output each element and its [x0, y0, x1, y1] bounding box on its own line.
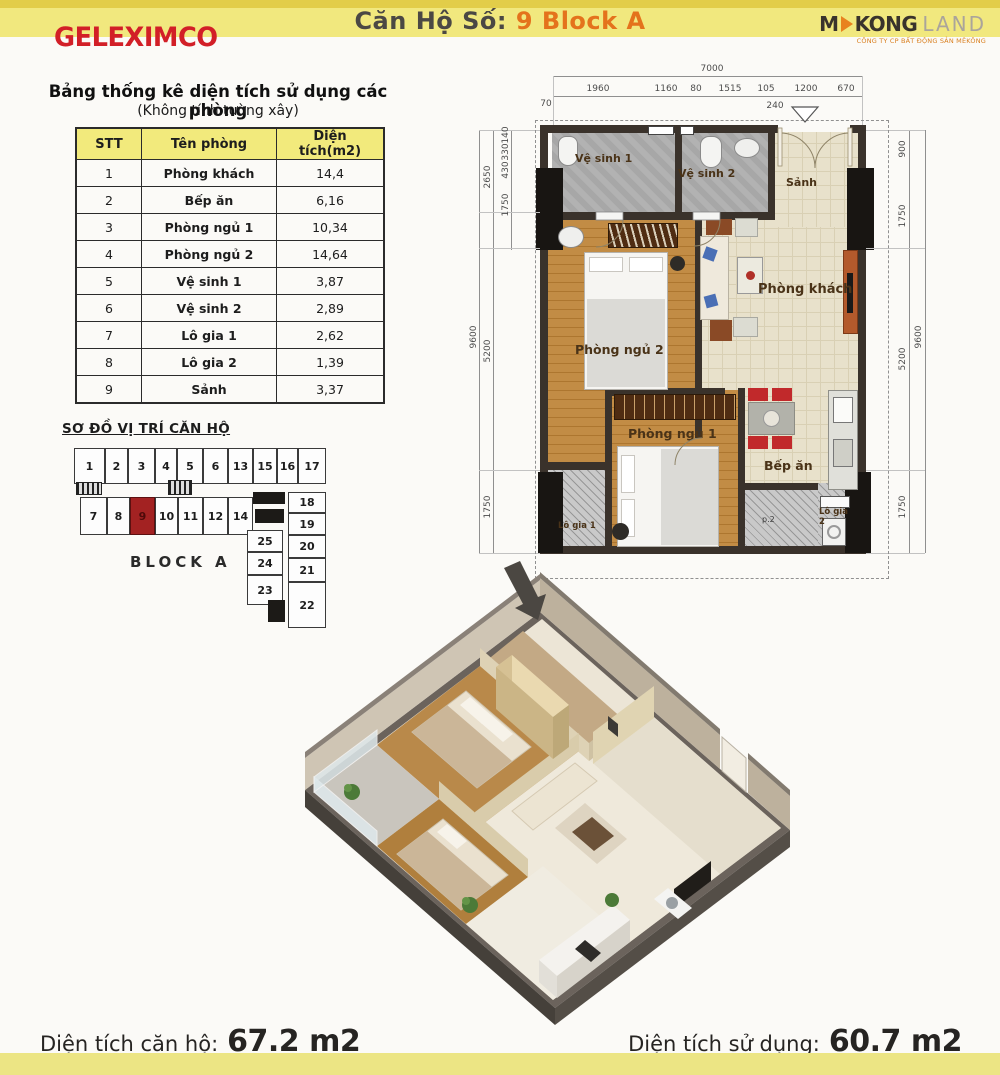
col-header-area: Diện tích(m2)	[277, 128, 385, 160]
dim-line	[553, 96, 863, 97]
dim-total-depth-left: 9600	[469, 317, 479, 357]
area-table-subtitle: (Không tính tường xây)	[28, 103, 408, 119]
extension-line	[479, 470, 540, 471]
table-row: 3Phòng ngủ 110,34	[76, 214, 384, 241]
area-table-header-row: STT Tên phòng Diện tích(m2)	[76, 128, 384, 160]
coffee-table-3d	[572, 817, 614, 851]
dim-line	[909, 130, 910, 553]
unit-cell: 18	[288, 492, 326, 513]
unit-cell: 15	[253, 448, 277, 484]
wardrobe-top	[496, 655, 569, 717]
floor-base	[314, 619, 781, 1000]
stairs-icon	[76, 482, 102, 495]
unit-cell: 11	[178, 497, 203, 535]
page-title-value: 9 Block A	[516, 7, 646, 35]
plan-boundary-dashed	[535, 120, 889, 579]
bed-1-blanket	[397, 831, 492, 910]
plant-icon	[462, 897, 478, 913]
dim-label: 105	[746, 84, 786, 94]
mekong-triangle-icon	[841, 16, 853, 32]
mekong-m: M	[819, 12, 838, 36]
bottom-yellow-band	[0, 1053, 1000, 1075]
col-header-name: Tên phòng	[142, 128, 277, 160]
dim-line	[479, 130, 480, 553]
block-a-label: BLOCK A	[130, 553, 231, 571]
plant-icon	[462, 897, 470, 905]
table-row: 8Lô gia 21,39	[76, 349, 384, 376]
dim-label: 900	[898, 129, 908, 169]
dim-label: 1960	[578, 84, 618, 94]
pillow	[460, 697, 492, 724]
extension-line	[479, 553, 540, 554]
slab-side	[305, 790, 555, 1025]
unit-cell: 1	[74, 448, 105, 484]
interior-wall	[480, 648, 589, 761]
tv-3d	[674, 861, 711, 909]
interior-wall	[593, 686, 654, 764]
table-row: 9Sảnh3,37	[76, 376, 384, 404]
dim-label: 5200	[898, 339, 908, 379]
slab-top	[305, 612, 790, 1008]
bathroom-floor-3d	[480, 631, 632, 761]
unit-cell: 10	[155, 497, 178, 535]
living-floor-3d	[475, 751, 720, 942]
extension-line	[479, 248, 540, 249]
rug	[555, 803, 627, 864]
interior-wall	[439, 781, 528, 877]
wardrobe-side	[553, 705, 569, 759]
unit-cell: 17	[298, 448, 326, 484]
back-wall-right-top	[748, 753, 790, 796]
bed-1-3d	[397, 819, 508, 910]
mekongland-logo: M KONG LAND CÔNG TY CP BẤT ĐỘNG SẢN MÊKÔ…	[811, 12, 986, 45]
unit-cell: 5	[177, 448, 203, 484]
table-row: 6Vệ sinh 22,89	[76, 295, 384, 322]
table-row: 5Vệ sinh 13,87	[76, 268, 384, 295]
entry-door	[722, 737, 746, 792]
unit-cell: 19	[288, 513, 326, 535]
plant-icon	[344, 784, 352, 792]
slab-side	[555, 830, 790, 1025]
dim-total-width: 7000	[692, 64, 732, 74]
balcony-floor-3d	[314, 745, 439, 846]
unit-cell: 2	[105, 448, 128, 484]
plant-icon	[605, 893, 619, 907]
dim-label: 2650	[483, 157, 493, 197]
unit-cell: 24	[247, 552, 283, 575]
location-map-title: SƠ ĐỒ VỊ TRÍ CĂN HỘ	[62, 421, 230, 437]
back-wall-left	[305, 580, 540, 790]
area-table: STT Tên phòng Diện tích(m2) 1Phòng khách…	[75, 127, 385, 404]
interior-wall	[475, 733, 579, 830]
washer-3d	[654, 888, 692, 919]
stove-3d	[575, 940, 601, 962]
kitchen-floor-3d	[466, 866, 630, 1000]
picture-frame	[608, 716, 618, 737]
dim-label: 1750	[898, 487, 908, 527]
dim-label: 1750	[501, 185, 511, 225]
geleximco-logo: GELEXIMCO	[54, 22, 218, 53]
unit-cell: 25	[247, 530, 283, 552]
elevator-icon	[168, 480, 192, 495]
unit-cell: 3	[128, 448, 155, 484]
elevator-icon	[255, 509, 284, 523]
kitchen-counter-side	[557, 920, 630, 998]
dim-line	[511, 130, 512, 250]
sofa-3d	[512, 763, 597, 830]
dim-label: 5200	[483, 331, 493, 371]
kitchen-counter-top	[539, 905, 630, 976]
kitchen-counter-front	[539, 960, 557, 998]
dim-label: 1750	[898, 196, 908, 236]
table-row: 1Phòng khách14,4	[76, 160, 384, 187]
wardrobe-side	[496, 655, 512, 709]
balcony-glass	[314, 777, 377, 846]
dim-line	[493, 130, 494, 553]
plant-icon	[344, 784, 360, 800]
bedroom1-floor-3d	[377, 799, 528, 924]
back-wall-right-top	[540, 572, 720, 735]
elevator-icon	[253, 492, 285, 504]
col-header-stt: STT	[76, 128, 142, 160]
unit-cell: 4	[155, 448, 177, 484]
brochure-page: Căn Hộ Số: 9 Block A GELEXIMCO M KONG LA…	[0, 0, 1000, 1075]
unit-cell: 12	[203, 497, 228, 535]
table-row: 2Bếp ăn6,16	[76, 187, 384, 214]
unit-cell: 13	[228, 448, 253, 484]
bed-2-3d	[412, 691, 531, 788]
unit-cell-9-highlighted: 9	[130, 497, 155, 535]
table-row: 7Lô gia 12,62	[76, 322, 384, 349]
unit-cell: 8	[107, 497, 130, 535]
dim-label: 240	[762, 101, 788, 111]
unit-cell: 22	[288, 582, 326, 628]
unit-cell: 21	[288, 558, 326, 582]
dim-total-depth-right: 9600	[914, 317, 924, 357]
dim-label: 430	[501, 150, 511, 190]
bed-2-blanket	[412, 705, 512, 788]
dim-line	[553, 76, 863, 77]
back-wall-right	[748, 759, 790, 830]
dim-label: 670	[826, 84, 866, 94]
back-wall-left-top	[305, 574, 540, 758]
page-title-prefix: Căn Hộ Số:	[354, 7, 507, 35]
dim-line	[925, 130, 926, 553]
dim-label: 1750	[483, 487, 493, 527]
dim-label: 1515	[710, 84, 750, 94]
dim-label: 70	[533, 99, 559, 109]
hall-floor-3d	[593, 718, 781, 874]
wardrobe-front	[496, 667, 553, 759]
balcony-glass	[314, 730, 377, 792]
back-wall-right	[540, 578, 720, 769]
unit-cell: 6	[203, 448, 228, 484]
unit-cell: 16	[277, 448, 298, 484]
pillow	[481, 715, 513, 742]
bedroom2-floor-3d	[377, 666, 579, 830]
mekong-land: LAND	[922, 12, 986, 36]
interior-wall	[589, 709, 632, 761]
unit-cell: 20	[288, 535, 326, 558]
dim-label: 1200	[786, 84, 826, 94]
unit-cell: 7	[80, 497, 107, 535]
table-row: 4Phòng ngủ 214,64	[76, 241, 384, 268]
mekong-tagline: CÔNG TY CP BẤT ĐỘNG SẢN MÊKÔNG	[811, 37, 986, 45]
pillow	[437, 824, 467, 849]
elevator-icon	[268, 600, 285, 622]
washer-drum	[666, 897, 678, 909]
mekong-kong: KONG	[855, 12, 918, 36]
